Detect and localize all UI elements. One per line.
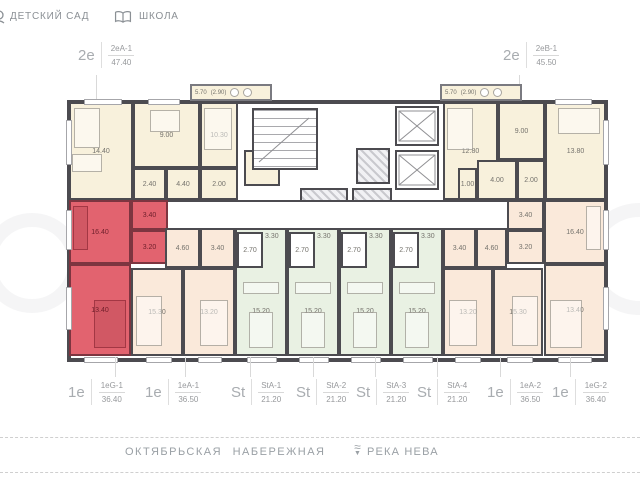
callout-1eA-2[interactable]: 1е 1еА-236.50 — [487, 379, 544, 405]
room-area-label: 4.40 — [176, 181, 190, 188]
callout-divider — [316, 379, 317, 405]
window — [84, 99, 122, 105]
room-area-label: 2.00 — [212, 181, 226, 188]
furniture — [353, 312, 377, 348]
window — [403, 357, 433, 363]
unit-code: StА-1 — [258, 380, 284, 392]
unit-area: 21.20 — [383, 392, 409, 405]
balcony-furniture — [243, 88, 252, 97]
unit-code: 1еА-1 — [175, 380, 202, 392]
room-1eA2-hall[interactable]: 4.60 — [476, 228, 507, 268]
unit-area: 36.40 — [583, 392, 609, 405]
callout-1eA-1[interactable]: 1е 1еА-136.50 — [145, 379, 202, 405]
callout-1eG-1[interactable]: 1е 1еG-136.40 — [68, 379, 126, 405]
balcony-furniture — [230, 88, 239, 97]
furniture — [347, 282, 383, 294]
room-2eB1-1-00[interactable]: 1.00 — [458, 168, 477, 200]
room-2eA1-2-40[interactable]: 2.40 — [133, 168, 166, 200]
callout-StA-4[interactable]: St StА-421.20 — [417, 379, 470, 405]
room-area-label: 1.00 — [461, 181, 475, 188]
unit-type: 2е — [503, 47, 520, 64]
furniture — [586, 206, 601, 250]
furniture — [150, 110, 180, 132]
studio-StA-3-wc: 2.70 — [341, 232, 367, 268]
window — [66, 287, 72, 330]
furniture — [301, 312, 325, 348]
utility-shaft — [356, 148, 390, 184]
unit-type: St — [356, 384, 370, 401]
furniture — [550, 300, 582, 348]
callout-StA-2[interactable]: St StА-221.20 — [296, 379, 349, 405]
callout-divider — [510, 379, 511, 405]
room-area-label: 3.20 — [519, 244, 533, 251]
unit-type: 2е — [78, 47, 95, 64]
unit-type: St — [417, 384, 431, 401]
furniture — [243, 282, 279, 294]
unit-type: 1е — [68, 384, 85, 401]
unit-code: StА-4 — [444, 380, 470, 392]
unit-code: 2еА-1 — [108, 43, 135, 55]
school-icon — [114, 10, 132, 24]
furniture — [200, 300, 228, 346]
room-area-label: 3.20 — [143, 244, 157, 251]
leader-line — [185, 357, 186, 377]
window — [84, 357, 118, 363]
window — [603, 287, 609, 330]
window — [603, 210, 609, 250]
window — [198, 357, 222, 363]
street-label: ОКТЯБРЬСКАЯ НАБЕРЕЖНАЯ — [125, 446, 326, 458]
room-area-label: 16.40 — [566, 229, 584, 236]
studio-StA-2-wc: 2.70 — [289, 232, 315, 268]
corridor — [166, 200, 509, 230]
unit-code: 2еВ-1 — [533, 43, 560, 55]
unit-code: StА-3 — [383, 380, 409, 392]
window — [603, 120, 609, 165]
studio-StA-4-entry-label: 3.30 — [421, 233, 435, 240]
callout-divider — [168, 379, 169, 405]
room-1eA2-wc[interactable]: 3.40 — [443, 228, 476, 268]
room-2eB1-4-00[interactable]: 4.00 — [477, 160, 517, 200]
balcony-area-label: 5.70 — [195, 90, 207, 96]
leader-line — [375, 357, 376, 377]
furniture — [249, 312, 273, 348]
unit-type: St — [231, 384, 245, 401]
window — [351, 357, 381, 363]
furniture — [295, 282, 331, 294]
unit-code: 1еА-2 — [517, 380, 544, 392]
legend-kindergarten-label: ДЕТСКИЙ САД — [10, 11, 89, 22]
leader-line — [250, 357, 251, 377]
river-label: РЕКА НЕВА — [367, 444, 439, 458]
unit-code: 1еG-2 — [582, 380, 610, 392]
unit-area: 47.40 — [108, 55, 134, 68]
room-1eG1-wc-selected[interactable]: 3.20 — [131, 230, 168, 264]
window — [558, 357, 592, 363]
studio-StA-1-wc: 2.70 — [237, 232, 263, 268]
unit-area: 21.20 — [444, 392, 470, 405]
room-area-label: 16.40 — [91, 229, 109, 236]
studio-StA-2-entry-label: 3.30 — [317, 233, 331, 240]
room-1eG1-hall-selected[interactable]: 3.40 — [131, 200, 168, 230]
kindergarten-icon — [0, 9, 7, 25]
room-2eA1-wc1[interactable]: 2.00 — [200, 168, 238, 200]
unit-area: 21.20 — [323, 392, 349, 405]
room-area-label: 9.00 — [160, 132, 174, 139]
callout-2eB-1[interactable]: 2е 2еВ-1 45.50 — [503, 42, 560, 68]
furniture — [136, 296, 162, 346]
unit-area: 45.50 — [533, 55, 559, 68]
window — [299, 357, 329, 363]
staircase — [252, 108, 318, 170]
callout-1eG-2[interactable]: 1е 1еG-236.40 — [552, 379, 610, 405]
room-area-label: 4.60 — [176, 245, 190, 252]
leader-line — [96, 75, 97, 100]
room-area-label: 2.00 — [524, 177, 538, 184]
leader-line — [570, 357, 571, 377]
unit-area: 21.20 — [258, 392, 284, 405]
map-divider-bottom — [0, 472, 640, 473]
callout-StA-1[interactable]: St StА-121.20 — [231, 379, 284, 405]
studio-StA-3-entry-label: 3.30 — [369, 233, 383, 240]
room-area-label: 2.70 — [399, 247, 413, 254]
callout-divider — [376, 379, 377, 405]
stair-arrow-icon — [255, 112, 315, 166]
furniture — [74, 108, 100, 148]
room-1eG2-wc[interactable]: 3.20 — [507, 230, 544, 264]
room-area-label: 4.60 — [485, 245, 499, 252]
balcony-furniture — [480, 88, 489, 97]
legend-school-label: ШКОЛА — [139, 11, 179, 22]
studio-StA-1-entry-label: 3.30 — [265, 233, 279, 240]
callout-divider — [575, 379, 576, 405]
room-area-label: 13.80 — [567, 148, 585, 155]
unit-type: 1е — [487, 384, 504, 401]
unit-area: 36.40 — [99, 392, 125, 405]
room-area-label: 2.70 — [243, 247, 257, 254]
room-area-label: 2.70 — [295, 247, 309, 254]
room-area-label: 9.00 — [515, 128, 529, 135]
room-2eB1-9-00[interactable]: 9.00 — [498, 102, 545, 160]
room-area-label: 3.40 — [143, 212, 157, 219]
window — [555, 99, 592, 105]
leader-line — [313, 357, 314, 377]
furniture — [399, 282, 435, 294]
floorplan-page: ДЕТСКИЙ САД ШКОЛА 2е 2еА-1 47.40 2е 2еВ-… — [0, 0, 640, 480]
unit-type: St — [296, 384, 310, 401]
elevator-x-icon — [398, 154, 436, 186]
studio-StA-4-wc: 2.70 — [393, 232, 419, 268]
callout-2eA-1[interactable]: 2е 2еА-1 47.40 — [78, 42, 135, 68]
callout-divider — [91, 379, 92, 405]
callout-divider — [437, 379, 438, 405]
unit-type: 1е — [145, 384, 162, 401]
room-area-label: 3.40 — [519, 212, 533, 219]
furniture — [72, 154, 102, 172]
balcony-right: 5.70 (2.90) — [440, 84, 522, 101]
room-area-label: 3.40 — [453, 245, 467, 252]
room-1eA1-hall[interactable]: 4.60 — [165, 228, 200, 268]
elevator-x-icon — [398, 110, 436, 142]
leader-line — [115, 357, 116, 377]
unit-area: 36.50 — [175, 392, 201, 405]
balcony-furniture — [493, 88, 502, 97]
furniture — [558, 108, 600, 134]
room-area-label: 4.00 — [490, 177, 504, 184]
room-area-label: 2.40 — [143, 181, 157, 188]
balcony-half-label: (2.90) — [461, 90, 477, 96]
window — [146, 357, 172, 363]
room-2eB1-wc[interactable]: 2.00 — [517, 160, 545, 200]
balcony-left: 5.70 (2.90) — [190, 84, 272, 101]
window — [66, 120, 72, 165]
elevator-shaft-2 — [395, 150, 439, 190]
room-2eA1-4-40[interactable]: 4.40 — [166, 168, 200, 200]
room-area-label: 2.70 — [347, 247, 361, 254]
callout-StA-3[interactable]: St StА-321.20 — [356, 379, 409, 405]
balcony-area-label: 5.70 — [445, 90, 457, 96]
window — [66, 210, 72, 250]
furniture — [73, 206, 88, 250]
elevator-shaft-1 — [395, 106, 439, 146]
window — [148, 99, 180, 105]
callout-divider — [526, 42, 527, 68]
furniture — [449, 300, 477, 346]
furniture — [204, 108, 232, 150]
balcony-half-label: (2.90) — [211, 90, 227, 96]
window — [507, 357, 533, 363]
window — [455, 357, 481, 363]
river-icon: ≈▼ — [354, 444, 361, 457]
leader-line — [500, 357, 501, 377]
unit-code: StА-2 — [323, 380, 349, 392]
furniture — [447, 108, 473, 150]
river-label-group: ≈▼ РЕКА НЕВА — [354, 444, 439, 458]
window — [247, 357, 277, 363]
map-divider-top — [0, 437, 640, 438]
room-1eG2-hall[interactable]: 3.40 — [507, 200, 544, 230]
furniture — [512, 296, 538, 346]
leader-line — [437, 357, 438, 377]
furniture — [94, 300, 126, 348]
unit-type: 1е — [552, 384, 569, 401]
unit-area: 36.50 — [517, 392, 543, 405]
room-1eA1-wc[interactable]: 3.40 — [200, 228, 235, 268]
callout-divider — [101, 42, 102, 68]
unit-code: 1еG-1 — [98, 380, 126, 392]
callout-divider — [251, 379, 252, 405]
room-area-label: 3.40 — [211, 245, 225, 252]
furniture — [405, 312, 429, 348]
